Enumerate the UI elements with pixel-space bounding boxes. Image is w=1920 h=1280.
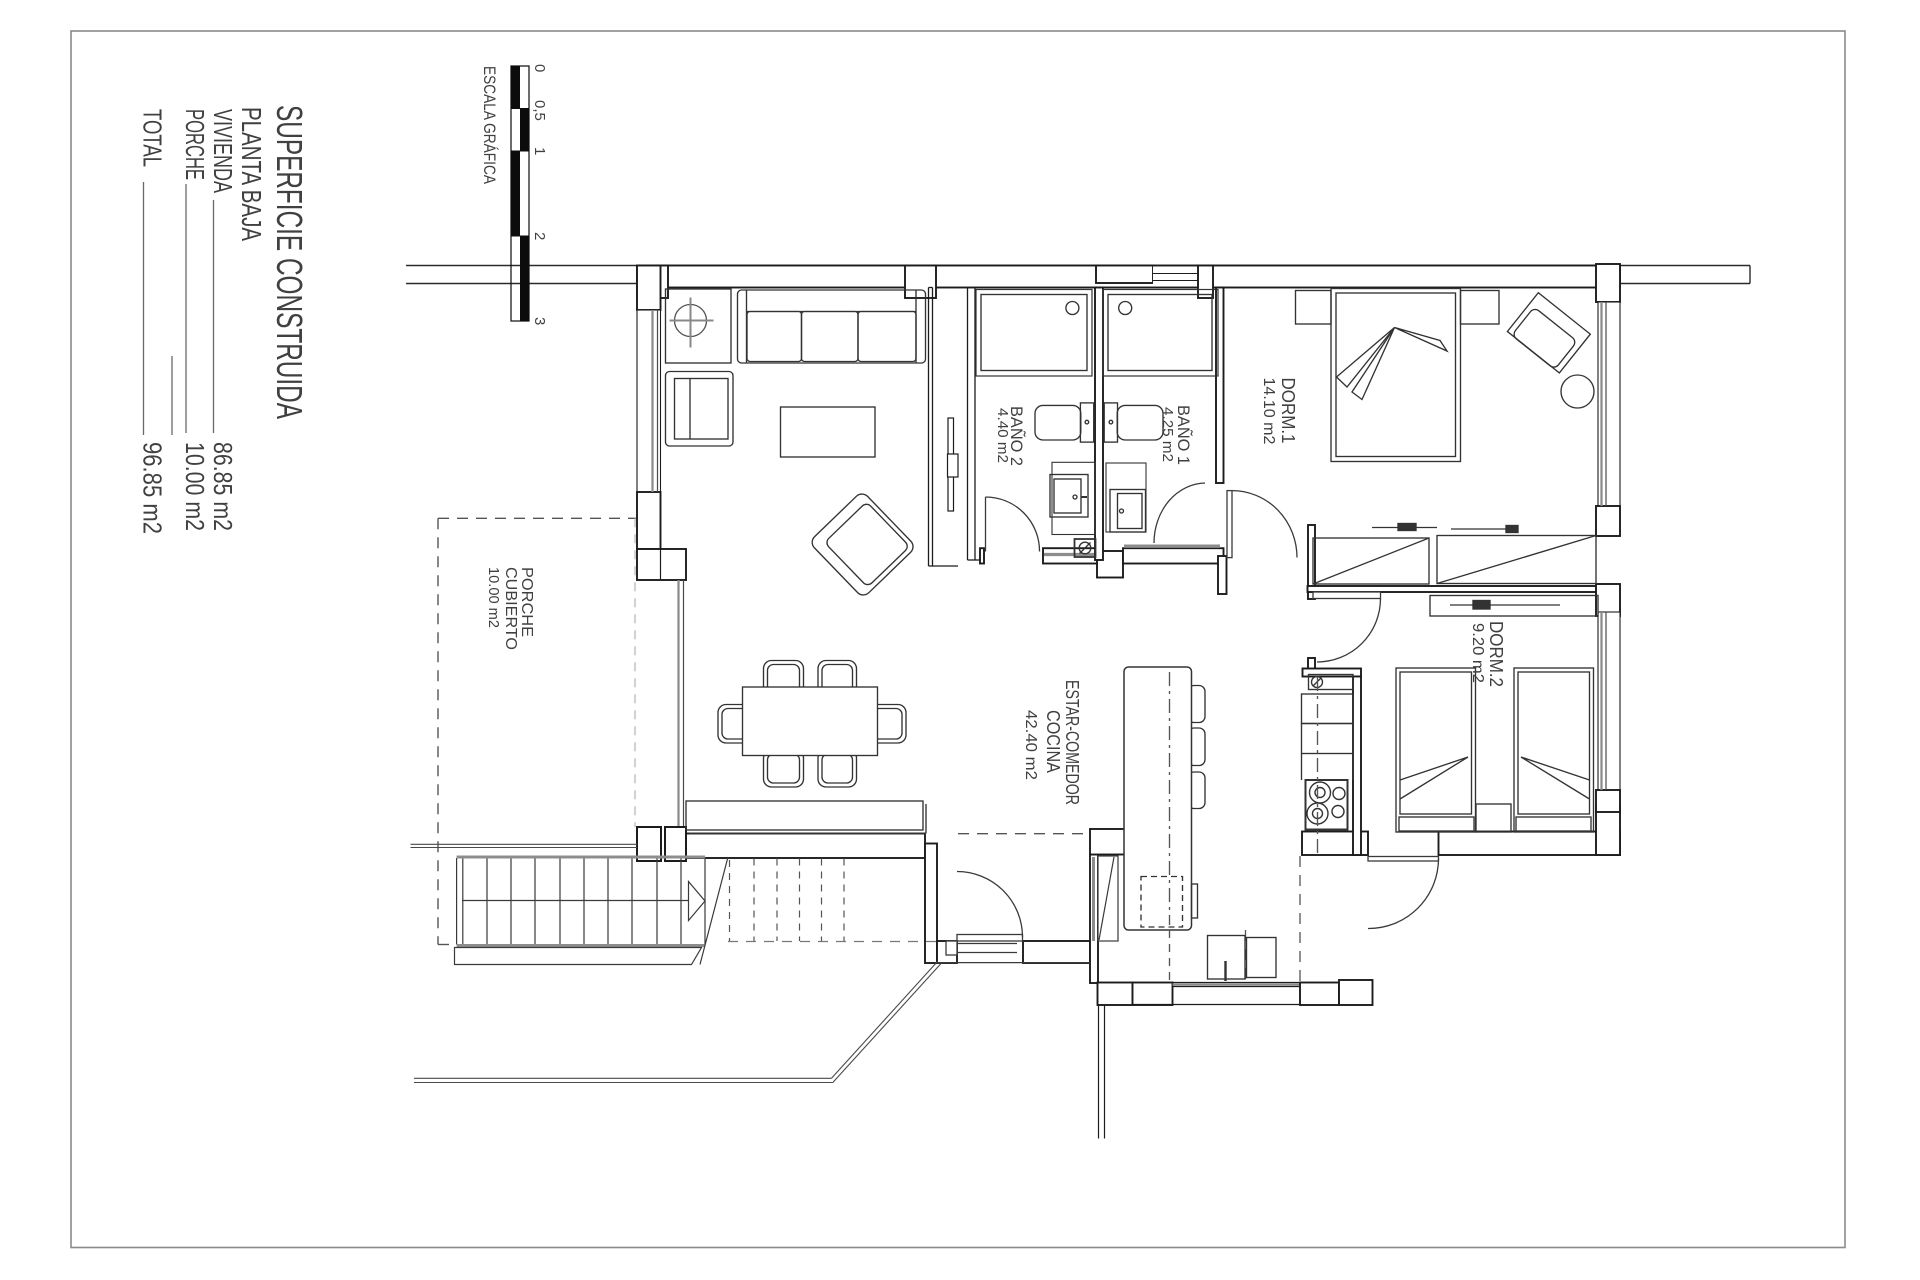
- svg-text:42.40 m2: 42.40 m2: [1022, 710, 1039, 780]
- svg-text:SUPERFICIE CONSTRUIDA: SUPERFICIE CONSTRUIDA: [269, 105, 310, 419]
- svg-text:14.10 m2: 14.10 m2: [1260, 378, 1277, 445]
- svg-text:2: 2: [531, 232, 548, 240]
- svg-text:86.85 m2: 86.85 m2: [208, 442, 238, 531]
- svg-text:ESTAR-COMEDOR: ESTAR-COMEDOR: [1062, 680, 1082, 805]
- svg-text:PORCHE: PORCHE: [180, 109, 210, 180]
- svg-text:DORM.1: DORM.1: [1278, 378, 1298, 444]
- svg-text:1: 1: [531, 147, 548, 155]
- svg-text:DORM.2: DORM.2: [1486, 621, 1506, 687]
- svg-text:4.25 m2: 4.25 m2: [1159, 407, 1176, 462]
- svg-text:0,5: 0,5: [531, 100, 548, 121]
- svg-text:10.00 m2: 10.00 m2: [485, 567, 502, 628]
- svg-text:PORCHE: PORCHE: [518, 567, 535, 637]
- svg-text:4.40 m2: 4.40 m2: [994, 408, 1011, 463]
- svg-text:10.00 m2: 10.00 m2: [180, 442, 210, 531]
- svg-text:9.20 m2: 9.20 m2: [1469, 623, 1486, 683]
- svg-text:0: 0: [531, 64, 548, 72]
- svg-text:VIVIENDA: VIVIENDA: [208, 109, 238, 193]
- svg-text:3: 3: [531, 317, 548, 325]
- svg-text:ESCALA GRÁFICA: ESCALA GRÁFICA: [480, 66, 499, 185]
- svg-text:CUBIERTO: CUBIERTO: [502, 567, 519, 650]
- svg-text:PLANTA BAJA: PLANTA BAJA: [236, 107, 267, 241]
- svg-text:COCINA: COCINA: [1043, 710, 1063, 773]
- svg-text:TOTAL: TOTAL: [138, 109, 168, 167]
- svg-text:96.85 m2: 96.85 m2: [138, 442, 168, 534]
